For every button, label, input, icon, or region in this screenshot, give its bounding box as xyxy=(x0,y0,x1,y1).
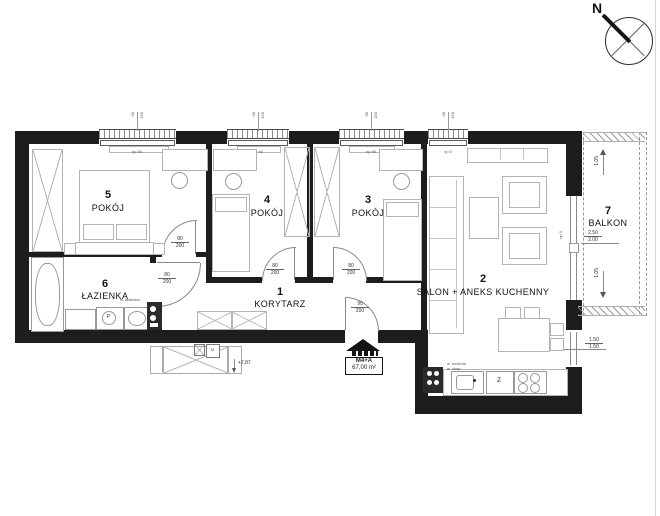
burner-dot xyxy=(434,380,439,385)
dim-over: 80 xyxy=(342,263,360,270)
interior-wall xyxy=(212,277,262,283)
level-mark-line xyxy=(234,359,235,368)
dining-table xyxy=(498,318,550,352)
level-mark: +2,87 xyxy=(238,360,251,366)
burner-dot xyxy=(427,380,432,385)
nightstand xyxy=(64,243,76,255)
washer-mark: P xyxy=(102,314,115,320)
bed-headboard xyxy=(75,242,154,255)
window-dim: 90 xyxy=(251,112,256,116)
exterior-wall-top xyxy=(468,131,582,144)
burner-dot xyxy=(434,371,439,376)
window-dim: 150 xyxy=(450,112,455,119)
dim-under: 200 xyxy=(158,279,176,285)
door-leaf xyxy=(333,247,334,280)
door-dim: 80 200 xyxy=(158,272,176,285)
shaft-slot xyxy=(150,323,158,327)
dim-under: 2.00 xyxy=(584,237,602,243)
bathtub-basin xyxy=(35,263,60,326)
sofa-cushion-line xyxy=(430,269,456,270)
dim-over: 80 xyxy=(158,272,176,279)
balcony-edge-hatch xyxy=(578,306,645,316)
balcony-depth-dim: 1.05 xyxy=(594,268,600,278)
floor-plan-sheet: N 90 150 np 90 90 150 np 90 90 150 np 90… xyxy=(0,0,660,516)
coffee-table xyxy=(469,197,499,239)
balcony-edge-hatch xyxy=(583,132,645,142)
window-tag: np 90 xyxy=(125,149,149,154)
dining-chair xyxy=(550,323,564,336)
interior-wall xyxy=(295,277,307,283)
dim-over: 2.50 xyxy=(584,230,602,237)
arrow-up-icon xyxy=(600,149,606,155)
shaft-dot xyxy=(150,315,156,321)
room-5-number: 5 xyxy=(105,189,111,201)
window-dim: 90 xyxy=(364,112,369,116)
exterior-wall-top xyxy=(176,131,227,144)
wardrobe-icon xyxy=(314,147,340,237)
nightstand xyxy=(153,243,165,255)
stair-divider xyxy=(162,346,163,372)
dimension-line xyxy=(603,271,604,292)
dimension-line xyxy=(581,243,619,244)
balcony-door-handle xyxy=(569,243,579,253)
room-5-name: POKÓJ xyxy=(92,203,125,213)
window-tag: np 0 xyxy=(436,149,460,154)
stove-oven xyxy=(423,367,443,393)
cooktop-ring xyxy=(530,373,540,383)
room-7-number: 7 xyxy=(605,205,611,217)
desk xyxy=(213,149,257,171)
cabinet xyxy=(65,309,96,330)
arrow-down-icon xyxy=(232,368,236,373)
sofa-back-line xyxy=(456,180,457,328)
chair-icon xyxy=(225,173,242,190)
interior-wall xyxy=(150,257,156,263)
exterior-wall-right xyxy=(566,144,582,196)
balcony-door-tag: np 0 xyxy=(558,231,563,239)
entry-door-dim: 90 200 xyxy=(351,301,369,314)
dimension-line xyxy=(448,112,449,131)
door-dim: 80 200 xyxy=(266,263,284,276)
room-7-name: BALKON xyxy=(589,218,628,228)
room-4-number: 4 xyxy=(264,194,270,206)
dimension-line xyxy=(137,112,138,131)
door-leaf xyxy=(294,247,295,280)
room-1-number: 1 xyxy=(277,286,283,298)
dimension-line xyxy=(258,112,259,131)
exterior-wall-kitchen-bottom xyxy=(415,396,582,414)
badge-roof-icon xyxy=(346,339,380,351)
balcony-depth-dim: 1.05 xyxy=(594,156,600,166)
interior-wall xyxy=(196,252,206,257)
room-3-number: 3 xyxy=(365,194,371,206)
dim-under: 1.50 xyxy=(585,344,603,350)
exterior-wall-top xyxy=(289,131,339,144)
window-dim: 90 xyxy=(441,112,446,116)
balcony-door-dim: 2.50 2.00 xyxy=(584,230,602,243)
exterior-wall-left xyxy=(15,131,29,343)
badge-area: 67,00 m² xyxy=(345,365,383,371)
room-1-name: KORYTARZ xyxy=(254,299,305,309)
pillow xyxy=(215,197,247,212)
vent-hood-label: w. okap xyxy=(447,366,461,371)
exterior-wall-bottom xyxy=(15,330,345,343)
door-dim: 80 200 xyxy=(171,236,189,249)
kitchen-tap xyxy=(473,379,476,382)
window-dim: 90 xyxy=(130,112,135,116)
desk xyxy=(379,149,423,171)
exterior-wall-bottom xyxy=(378,330,428,343)
wardrobe-icon xyxy=(32,149,63,252)
dim-under: 200 xyxy=(171,243,189,249)
room-2-number: 2 xyxy=(480,273,486,285)
badge-columns-icon xyxy=(352,351,378,356)
sideboard-divider xyxy=(500,149,501,160)
door-dim: 80 200 xyxy=(342,263,360,276)
interior-wall xyxy=(313,277,333,283)
window-dim: 150 xyxy=(139,112,144,119)
badge-unit: M4+A xyxy=(345,358,383,364)
exterior-wall-right xyxy=(566,367,582,414)
arrow-down-icon xyxy=(600,292,606,298)
exterior-wall-top xyxy=(404,131,428,144)
chair-icon xyxy=(393,173,410,190)
room-2-name: SALON + ANEKS KUCHENNY xyxy=(417,287,550,297)
closet-icon xyxy=(231,311,267,330)
wardrobe-icon xyxy=(284,147,310,237)
armchair-cushion xyxy=(509,182,540,208)
dimension-line xyxy=(603,154,604,175)
cooktop-ring xyxy=(530,383,540,393)
dim-under: 200 xyxy=(342,270,360,276)
dim-under: 200 xyxy=(266,270,284,276)
sofa-cushion-line xyxy=(430,207,456,208)
pillow xyxy=(386,202,419,217)
meter-mark: M xyxy=(206,347,219,352)
burner-dot xyxy=(427,371,432,376)
room-3-name: POKÓJ xyxy=(352,208,385,218)
dim-over: 80 xyxy=(266,263,284,270)
meter-box xyxy=(194,344,205,356)
door-leaf xyxy=(195,220,196,254)
door-leaf xyxy=(157,262,200,263)
sofa-cushion-line xyxy=(430,300,456,301)
compass-north-label: N xyxy=(592,0,602,16)
desk xyxy=(162,149,208,171)
room-4-name: POKÓJ xyxy=(251,208,284,218)
window-dim: 150 xyxy=(373,112,378,119)
chair-icon xyxy=(171,172,188,189)
cooktop-ring xyxy=(518,373,528,383)
dining-chair xyxy=(550,338,564,351)
stair-divider xyxy=(227,346,228,372)
pillow xyxy=(116,224,147,240)
room-6-name: ŁAZIENKA xyxy=(82,291,129,301)
pillow xyxy=(83,224,114,240)
sideboard xyxy=(467,148,548,163)
dining-chair xyxy=(505,307,521,319)
sheet-border xyxy=(655,0,656,516)
door-swing-bathroom xyxy=(157,263,201,307)
armchair-cushion xyxy=(509,233,540,259)
sofa xyxy=(429,176,464,334)
dim-over: 80 xyxy=(171,236,189,243)
side-window-dim: 1.50 1.50 xyxy=(585,337,603,350)
cooktop-ring xyxy=(518,383,528,393)
room-6-number: 6 xyxy=(102,278,108,290)
dishwasher-mark: Z xyxy=(486,378,512,384)
dining-chair xyxy=(524,307,540,319)
sink-basin xyxy=(128,311,146,326)
dim-under: 200 xyxy=(351,308,369,314)
balcony-outline-inner xyxy=(639,132,640,314)
kitchen-sink-basin xyxy=(456,375,474,390)
closet-icon xyxy=(197,311,233,330)
dimension-line xyxy=(371,112,372,131)
sideboard-divider xyxy=(523,149,524,160)
dim-over: 90 xyxy=(351,301,369,308)
shaft-dot xyxy=(150,306,156,312)
window-dim: 150 xyxy=(260,112,265,119)
door-leaf xyxy=(345,297,346,330)
dim-over: 1.50 xyxy=(585,337,603,344)
sofa-cushion-line xyxy=(430,238,456,239)
